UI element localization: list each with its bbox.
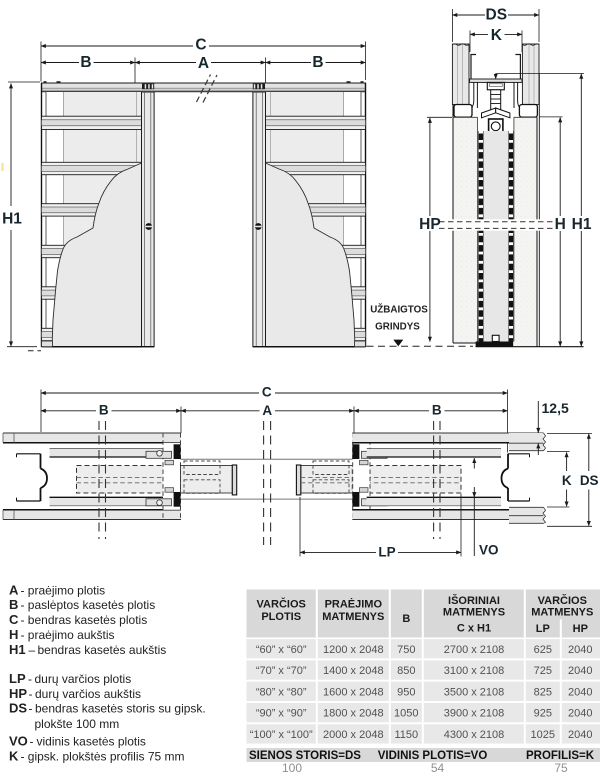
svg-text:1150: 1150	[394, 729, 418, 741]
svg-text:H1: H1	[2, 211, 22, 228]
svg-text:C-bendras kasetės plotis: C-bendras kasetės plotis	[9, 612, 147, 627]
svg-text:1600 x 2048: 1600 x 2048	[323, 686, 384, 698]
svg-text:825: 825	[534, 686, 552, 698]
svg-text:IŠORINIAI: IŠORINIAI	[448, 594, 500, 607]
svg-text:625: 625	[534, 644, 552, 656]
svg-text:plokšte 100 mm: plokšte 100 mm	[35, 717, 120, 731]
svg-text:“90” x “90”: “90” x “90”	[256, 708, 307, 720]
svg-text:2700 x 2108: 2700 x 2108	[444, 644, 505, 656]
svg-text:2000 x 2048: 2000 x 2048	[323, 729, 384, 741]
svg-text:C: C	[195, 37, 206, 54]
svg-text:MATMENYS: MATMENYS	[531, 606, 593, 618]
svg-text:B: B	[312, 54, 323, 71]
svg-text:VO: VO	[479, 542, 499, 557]
svg-text:HP-durų varčios aukštis: HP-durų varčios aukštis	[9, 686, 141, 701]
svg-text:2040: 2040	[568, 665, 592, 677]
svg-text:MATMENYS: MATMENYS	[322, 611, 384, 623]
svg-text:“60” x “60”: “60” x “60”	[256, 644, 307, 656]
svg-text:A: A	[262, 403, 272, 418]
svg-text:LP-durų varčios plotis: LP-durų varčios plotis	[9, 671, 131, 686]
svg-text:3500 x 2108: 3500 x 2108	[444, 686, 505, 698]
svg-text:B: B	[432, 402, 442, 417]
svg-text:1200 x 2048: 1200 x 2048	[323, 644, 384, 656]
svg-text:2040: 2040	[568, 644, 592, 656]
svg-text:A-praėjimo plotis: A-praėjimo plotis	[9, 582, 105, 597]
svg-text:2040: 2040	[568, 686, 592, 698]
svg-text:DS-bendras kasetės storis su g: DS-bendras kasetės storis su gipsk.	[9, 701, 206, 716]
svg-text:UŽBAIGTOS: UŽBAIGTOS	[370, 304, 428, 316]
svg-text:K: K	[491, 27, 503, 44]
svg-text:750: 750	[397, 644, 415, 656]
svg-text:3900 x 2108: 3900 x 2108	[444, 708, 505, 720]
svg-text:1050: 1050	[394, 708, 418, 720]
svg-text:3100 x 2108: 3100 x 2108	[444, 665, 505, 677]
svg-text:C x H1: C x H1	[457, 622, 491, 634]
svg-text:2040: 2040	[568, 729, 592, 741]
svg-text:“100” x “100”: “100” x “100”	[250, 729, 313, 741]
svg-text:DS: DS	[486, 7, 508, 24]
svg-text:B: B	[402, 613, 410, 625]
svg-text:“80” x “80”: “80” x “80”	[256, 686, 307, 698]
svg-text:2040: 2040	[568, 708, 592, 720]
svg-text:850: 850	[397, 665, 415, 677]
svg-text:1025: 1025	[531, 729, 555, 741]
svg-text:75: 75	[554, 761, 568, 775]
svg-text:LP: LP	[536, 623, 550, 635]
svg-text:950: 950	[397, 686, 415, 698]
svg-text:H: H	[555, 216, 566, 233]
svg-text:1800 x 2048: 1800 x 2048	[323, 708, 384, 720]
svg-text:12,5: 12,5	[542, 400, 569, 416]
svg-text:54: 54	[431, 761, 445, 775]
svg-text:PRAĖJIMO: PRAĖJIMO	[325, 598, 383, 611]
svg-text:LP: LP	[378, 544, 395, 559]
svg-text:K-gipsk. plokštės profilis 75: K-gipsk. plokštės profilis 75 mm	[9, 749, 185, 764]
svg-text:1400 x 2048: 1400 x 2048	[323, 665, 384, 677]
svg-text:A: A	[198, 55, 209, 72]
svg-text:B: B	[99, 402, 109, 417]
svg-text:925: 925	[534, 708, 552, 720]
svg-text:HP: HP	[419, 216, 441, 233]
svg-text:VARČIOS: VARČIOS	[257, 598, 306, 611]
svg-text:C: C	[262, 384, 272, 399]
svg-text:4300 x 2108: 4300 x 2108	[444, 729, 505, 741]
svg-text:PLOTIS: PLOTIS	[261, 611, 301, 623]
svg-text:VARČIOS: VARČIOS	[538, 594, 587, 607]
svg-text:HP: HP	[573, 623, 588, 635]
svg-text:MATMENYS: MATMENYS	[443, 606, 505, 618]
svg-text:H1: H1	[572, 216, 592, 233]
svg-text:VO-vidinis kasetės plotis: VO-vidinis kasetės plotis	[9, 734, 146, 749]
svg-text:DS: DS	[580, 473, 599, 488]
svg-text:725: 725	[534, 665, 552, 677]
svg-text:SIENOS STORIS=DS: SIENOS STORIS=DS	[249, 750, 361, 762]
svg-text:H1–bendras kasetės aukštis: H1–bendras kasetės aukštis	[9, 642, 166, 657]
svg-text:“70” x “70”: “70” x “70”	[256, 665, 307, 677]
svg-text:B: B	[80, 54, 91, 71]
svg-text:B-paslėptos kasetės plotis: B-paslėptos kasetės plotis	[9, 597, 155, 612]
svg-text:GRINDYS: GRINDYS	[375, 322, 420, 333]
svg-text:K: K	[562, 473, 572, 488]
svg-text:100: 100	[282, 761, 302, 775]
